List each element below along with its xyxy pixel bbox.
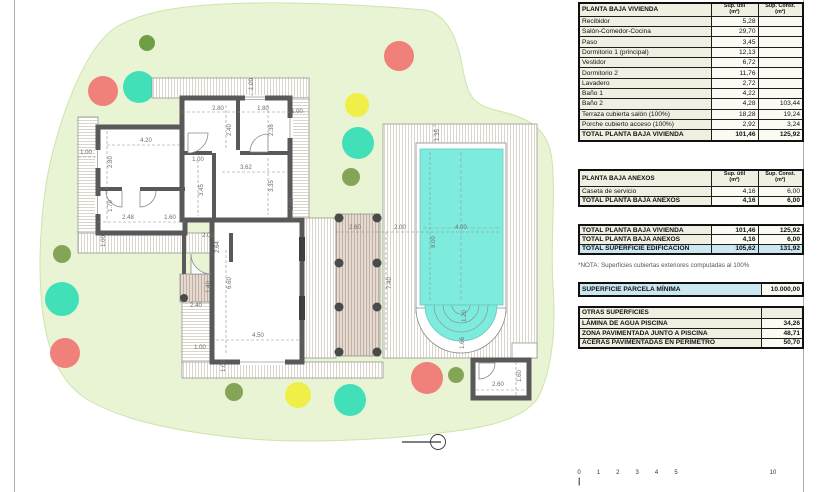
tree-icon (342, 168, 360, 186)
tree-icon (88, 76, 118, 106)
row-label: Porche cubierto acceso (100%) (579, 119, 711, 129)
row-label: TOTAL PLANTA BAJA ANEXOS (579, 235, 711, 245)
row-value (758, 58, 803, 68)
row-label: Recibidor (579, 16, 711, 26)
tree-icon (45, 282, 79, 316)
dimension-label: 3.35 (269, 180, 275, 192)
dimension-label: 2.38 (269, 124, 275, 136)
dimension-label: 6.60 (227, 277, 233, 289)
row-value: 4,16 (711, 235, 758, 245)
dimension-label: 2.40 (227, 124, 233, 136)
dimension-label: 1.00 (80, 150, 92, 156)
deck-bottomleft-strip (78, 233, 212, 253)
row-value: 50,70 (761, 338, 803, 348)
tree-icon (225, 383, 243, 401)
plan-sheet: 1.002.801.801.002.402.384.201.002.801.00… (0, 0, 819, 492)
row-value: 131,92 (758, 244, 803, 254)
row-value: 125,92 (758, 225, 803, 235)
row-value: 6,00 (758, 235, 803, 245)
row-value: 6,00 (758, 196, 803, 206)
dimension-label: 2.00 (394, 225, 406, 231)
dimension-label: 3.45 (199, 184, 205, 196)
col-sup-util: Sup. útil (m²) (711, 170, 758, 186)
dimension-label: 2.80 (212, 106, 224, 112)
row-value (758, 37, 803, 47)
tree-icon (345, 93, 369, 117)
row-value: 2,92 (711, 119, 758, 129)
row-label: Terraza cubierta salón (100%) (579, 109, 711, 119)
dimension-label: 3.62 (240, 165, 252, 171)
table-title: PLANTA BAJA VIVIENDA (579, 3, 711, 16)
parcela-value: 10.000,00 (761, 283, 803, 296)
swimming-pool (416, 143, 506, 353)
tree-icon (285, 382, 311, 408)
dimension-label: 7.40 (387, 277, 393, 289)
row-value (758, 16, 803, 26)
house-living-room (212, 220, 302, 362)
dimension-label: 1.00 (192, 157, 204, 163)
row-value (758, 88, 803, 98)
row-value (758, 78, 803, 88)
row-value (758, 27, 803, 37)
row-value: 4,16 (711, 196, 758, 206)
dimension-label: 1.80 (257, 106, 269, 112)
dimension-label: 1.00 (221, 360, 227, 372)
table-otras-superficies: OTRAS SUPERFICIES LÁMINA DE AGUA PISCINA… (578, 306, 804, 349)
row-label: Dormitorio 2 (579, 68, 711, 78)
row-value: 48,71 (761, 328, 803, 338)
row-value: 101,46 (711, 130, 758, 141)
dimension-label: 2.40 (190, 303, 202, 309)
row-value: 34,26 (761, 318, 803, 328)
row-label: Lavadero (579, 78, 711, 88)
scale-bar-segment (579, 478, 580, 485)
row-value: 6,00 (758, 186, 803, 196)
covered-terrace (335, 214, 382, 357)
row-label: Vestidor (579, 58, 711, 68)
dimension-label: 8.00 (431, 236, 437, 248)
dimension-label: 2.64 (215, 241, 221, 253)
tree-icon (334, 384, 366, 416)
scale-bar-number: 5 (674, 470, 677, 476)
deck-left-strip (78, 117, 98, 233)
row-label: Dormitorio 1 (principal) (579, 47, 711, 57)
footnote: *NOTA: Superficies cubiertas exteriores … (578, 262, 749, 269)
col-sup-const: Sup. Const. (m²) (758, 3, 803, 16)
row-value: 4,28 (711, 99, 758, 109)
col-sup-util: Sup. útil (m²) (711, 3, 758, 16)
site-plan-drawing (0, 0, 580, 492)
row-value: 105,62 (711, 244, 758, 254)
scale-bar-number: 10 (770, 470, 777, 476)
tree-icon (411, 362, 443, 394)
table-title: OTRAS SUPERFICIES (579, 307, 761, 318)
dimension-label: 1.00 (249, 78, 255, 90)
table-title: PLANTA BAJA ANEXOS (579, 170, 711, 186)
dimension-label: 1.00 (101, 235, 107, 247)
tree-icon (384, 41, 414, 71)
row-value: 11,76 (711, 68, 758, 78)
row-value: 103,44 (758, 99, 803, 109)
row-label: ACERAS PAVIMENTADAS EN PERÍMETRO (579, 338, 761, 348)
row-value: 4,22 (711, 88, 758, 98)
tree-icon (139, 35, 155, 51)
row-value (758, 68, 803, 78)
dimension-label: 2.60 (349, 225, 361, 231)
dimension-label: 1.00 (291, 109, 303, 115)
parcela-label: SUPERFICIE PARCELA MÍNIMA (579, 283, 761, 296)
deck-right-strip (290, 98, 309, 230)
scale-bar-number: 0 (577, 470, 580, 476)
row-label: Baño 2 (579, 99, 711, 109)
row-label: ZONA PAVIMENTADA JUNTO A PISCINA (579, 328, 761, 338)
row-label: Salón-Comedor-Cocina (579, 27, 711, 37)
row-value: 4,16 (711, 186, 758, 196)
row-label: TOTAL SUPERFICIE EDIFICACIÓN (579, 244, 711, 254)
dimension-label: 2.00 (202, 233, 214, 239)
dimension-label: 4.00 (455, 225, 467, 231)
table-planta-baja-anexos: PLANTA BAJA ANEXOS Sup. útil (m²) Sup. C… (578, 169, 804, 207)
dimension-label: 1.35 (435, 129, 441, 141)
row-value: 19,24 (758, 109, 803, 119)
row-label: LÁMINA DE AGUA PISCINA (579, 318, 761, 328)
row-value: 29,70 (711, 27, 758, 37)
scale-bar-number: 3 (636, 470, 639, 476)
scale-bar-number: 1 (597, 470, 600, 476)
tree-icon (342, 127, 374, 159)
row-label: Caseta de servicio (579, 186, 711, 196)
row-value: 18,28 (711, 109, 758, 119)
table-planta-baja-vivienda: PLANTA BAJA VIVIENDA Sup. útil (m²) Sup.… (578, 2, 804, 142)
row-value: 3,24 (758, 119, 803, 129)
pool-deck-notch (512, 343, 537, 358)
tree-icon (50, 338, 80, 368)
row-value: 2,72 (711, 78, 758, 88)
row-value (758, 47, 803, 57)
dimension-label: 2.48 (122, 215, 134, 221)
table-totales: TOTAL PLANTA BAJA VIVIENDA101,46125,92TO… (578, 224, 804, 255)
dimension-label: 2.80 (108, 156, 114, 168)
row-value: 3,45 (711, 37, 758, 47)
dimension-label: 1.70 (108, 200, 114, 212)
dimension-label: 4.20 (140, 138, 152, 144)
dimension-label: 2.60 (492, 382, 504, 388)
dimension-label: 1.60 (164, 215, 176, 221)
row-label: TOTAL PLANTA BAJA VIVIENDA (579, 225, 711, 235)
dimension-label: 4.50 (252, 333, 264, 339)
dimension-label: 1.20 (462, 310, 468, 322)
row-value: 125,92 (758, 130, 803, 141)
row-value: 12,13 (711, 47, 758, 57)
deck-top-strip (152, 78, 309, 98)
dimension-label: 1.00 (194, 345, 206, 351)
scale-bar-number: 2 (616, 470, 619, 476)
scale-bar (579, 478, 580, 485)
dimension-label: 1.66 (460, 337, 466, 349)
dimension-label: 1.40 (206, 281, 212, 293)
tree-icon (53, 245, 71, 263)
row-label: Paso (579, 37, 711, 47)
dimension-label: 1.00 (289, 198, 295, 210)
col-sup-const: Sup. Const. (m²) (758, 170, 803, 186)
row-value: 5,28 (711, 16, 758, 26)
scale-bar-number: 4 (655, 470, 658, 476)
row-label: Baño 1 (579, 88, 711, 98)
row-value: 101,46 (711, 225, 758, 235)
row-label: TOTAL PLANTA BAJA ANEXOS (579, 196, 711, 206)
row-value: 6,72 (711, 58, 758, 68)
dimension-label: 1.60 (517, 370, 523, 382)
tree-icon (448, 367, 464, 383)
deck-salon-left-strip (182, 302, 212, 362)
tree-icon (123, 71, 155, 103)
row-label: TOTAL PLANTA BAJA VIVIENDA (579, 130, 711, 141)
table-parcela-minima: SUPERFICIE PARCELA MÍNIMA 10.000,00 (578, 282, 804, 297)
deck-terrace-walk (302, 218, 336, 358)
